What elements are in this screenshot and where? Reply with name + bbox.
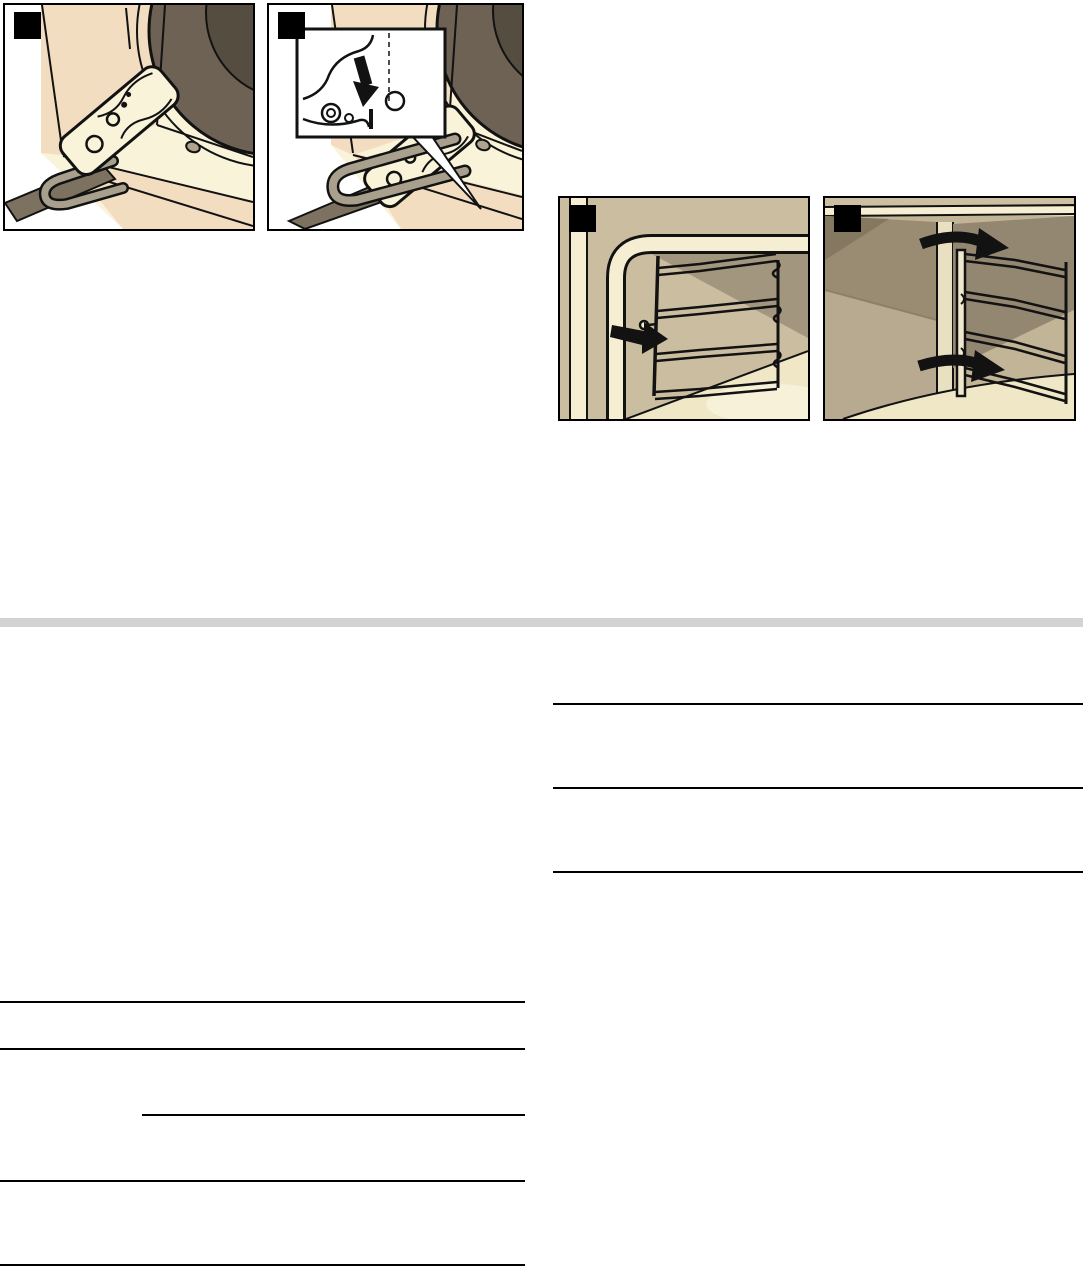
detail-inset bbox=[297, 29, 445, 137]
figure-panel-hinge-lever bbox=[3, 3, 255, 231]
table-rule bbox=[0, 1264, 525, 1266]
table-rule bbox=[553, 787, 1083, 789]
figure-panel-rack-swing bbox=[823, 196, 1076, 421]
oven-door-corner-scene bbox=[269, 5, 522, 229]
table-rule bbox=[553, 871, 1083, 873]
oven-door-corner-scene bbox=[5, 5, 253, 229]
figure-number-badge bbox=[569, 205, 596, 232]
figure-panel-rack-unhook bbox=[558, 196, 810, 421]
hinge-lever-illustration bbox=[5, 5, 253, 229]
table-rule-inner bbox=[142, 1114, 525, 1116]
hinge-inset-illustration bbox=[269, 5, 522, 229]
figure-panel-hinge-inset bbox=[267, 3, 524, 231]
section-divider-bar bbox=[0, 618, 1083, 627]
table-rule bbox=[553, 703, 1083, 705]
oven-interior-scene bbox=[560, 198, 808, 419]
manual-page bbox=[0, 0, 1083, 1267]
table-rule bbox=[0, 1180, 525, 1182]
figure-number-badge bbox=[14, 12, 41, 39]
table-rule bbox=[0, 1048, 525, 1050]
oven-interior-scene bbox=[825, 198, 1074, 419]
table-rule bbox=[0, 1001, 525, 1003]
figure-number-badge bbox=[834, 205, 861, 232]
rack-swing-illustration bbox=[825, 198, 1074, 419]
rack-unhook-illustration bbox=[560, 198, 808, 419]
figure-number-badge bbox=[278, 12, 305, 39]
